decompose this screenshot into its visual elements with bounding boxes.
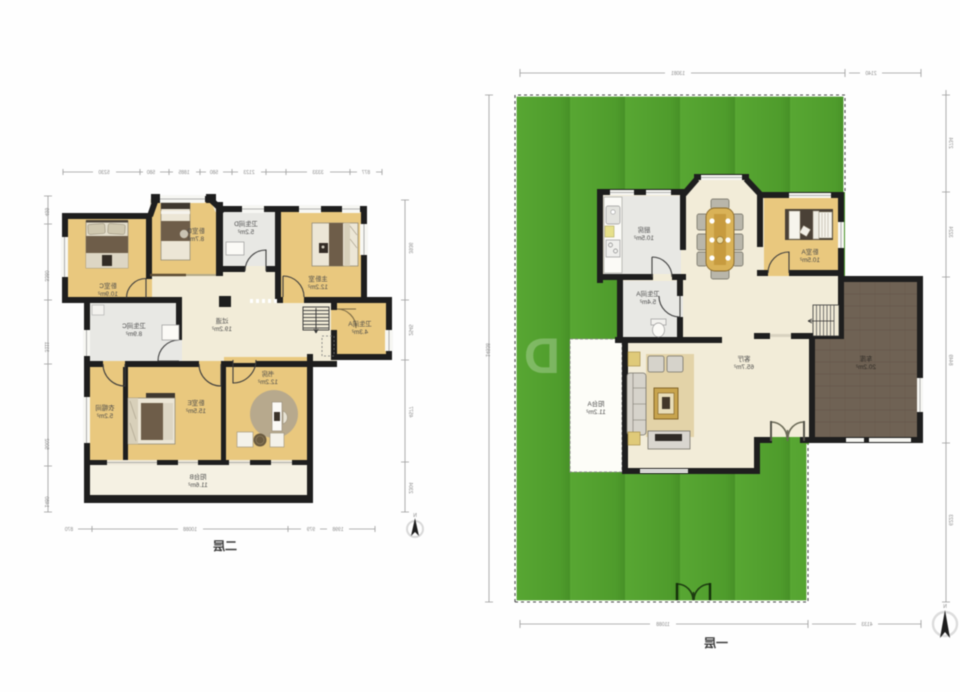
svg-text:4577: 4577 — [407, 406, 413, 417]
svg-text:1998: 1998 — [332, 527, 343, 533]
svg-text:N: N — [943, 604, 947, 610]
svg-text:2123: 2123 — [243, 170, 254, 176]
svg-text:1885: 1885 — [178, 170, 189, 176]
svg-text:3380: 3380 — [43, 270, 49, 281]
svg-text:卫生间A: 卫生间A — [636, 289, 660, 298]
svg-text:12.2m²: 12.2m² — [308, 284, 328, 291]
svg-text:2734: 2734 — [947, 137, 953, 148]
svg-text:15.5m²: 15.5m² — [186, 408, 206, 415]
svg-text:1480: 1480 — [43, 496, 49, 507]
svg-text:11.2m²: 11.2m² — [586, 409, 605, 416]
svg-text:卫生间C: 卫生间C — [122, 321, 146, 330]
svg-text:5230: 5230 — [98, 170, 109, 176]
svg-text:卫生间A: 卫生间A — [348, 319, 372, 328]
svg-text:979: 979 — [307, 527, 316, 533]
svg-text:N: N — [413, 513, 417, 519]
svg-text:11.6m²: 11.6m² — [188, 482, 207, 489]
svg-text:阳台A: 阳台A — [587, 399, 605, 408]
svg-text:3333: 3333 — [312, 170, 323, 176]
svg-text:2304: 2304 — [407, 482, 413, 493]
svg-text:3111: 3111 — [43, 342, 49, 353]
svg-text:卫生间D: 卫生间D — [234, 219, 258, 228]
svg-text:过道: 过道 — [215, 316, 228, 325]
svg-text:10.5m²: 10.5m² — [634, 235, 654, 242]
svg-text:4.3m²: 4.3m² — [352, 329, 368, 336]
svg-text:11088: 11088 — [656, 622, 670, 628]
svg-text:二层: 二层 — [213, 539, 237, 553]
svg-text:阳台B: 阳台B — [189, 472, 206, 481]
svg-text:8449: 8449 — [947, 354, 953, 365]
svg-text:一层: 一层 — [704, 636, 728, 650]
svg-text:5.2m²: 5.2m² — [238, 229, 254, 236]
svg-text:5002: 5002 — [43, 438, 49, 449]
svg-text:8.7m²: 8.7m² — [188, 236, 204, 243]
svg-text:10.5m²: 10.5m² — [800, 257, 820, 264]
svg-text:8.9m²: 8.9m² — [126, 331, 142, 338]
svg-text:12.2m²: 12.2m² — [258, 379, 278, 386]
svg-text:14938: 14938 — [484, 343, 490, 357]
svg-text:19.2m²: 19.2m² — [212, 326, 232, 333]
svg-text:书房: 书房 — [262, 369, 275, 378]
svg-text:2140: 2140 — [865, 71, 876, 77]
svg-text:870: 870 — [65, 527, 74, 533]
svg-text:20.2m²: 20.2m² — [856, 364, 876, 371]
svg-text:5.2m²: 5.2m² — [97, 413, 113, 420]
svg-text:580: 580 — [210, 170, 219, 176]
svg-text:4133: 4133 — [861, 622, 872, 628]
svg-text:卧室A: 卧室A — [801, 247, 819, 256]
svg-text:卧室D: 卧室D — [187, 226, 205, 235]
svg-text:10088: 10088 — [183, 527, 197, 533]
svg-text:499: 499 — [43, 208, 49, 217]
svg-text:65.7m²: 65.7m² — [734, 364, 754, 371]
svg-text:卧室C: 卧室C — [99, 281, 117, 290]
svg-text:3936: 3936 — [407, 242, 413, 253]
svg-text:877: 877 — [362, 170, 371, 176]
svg-text:客厅: 客厅 — [737, 354, 750, 363]
svg-text:2545: 2545 — [407, 324, 413, 335]
svg-text:6223: 6223 — [947, 514, 953, 525]
svg-text:10.9m²: 10.9m² — [98, 291, 118, 298]
svg-text:580: 580 — [147, 170, 156, 176]
svg-text:衣帽间: 衣帽间 — [95, 403, 114, 412]
svg-text:厨房: 厨房 — [638, 225, 651, 234]
svg-text:主卧室: 主卧室 — [308, 274, 328, 283]
svg-text:13081: 13081 — [671, 71, 685, 77]
svg-text:卧室E: 卧室E — [187, 398, 204, 407]
svg-text:3224: 3224 — [947, 226, 953, 237]
svg-text:车库: 车库 — [859, 354, 872, 363]
svg-text:D: D — [524, 328, 560, 384]
svg-text:5.4m²: 5.4m² — [640, 299, 656, 306]
